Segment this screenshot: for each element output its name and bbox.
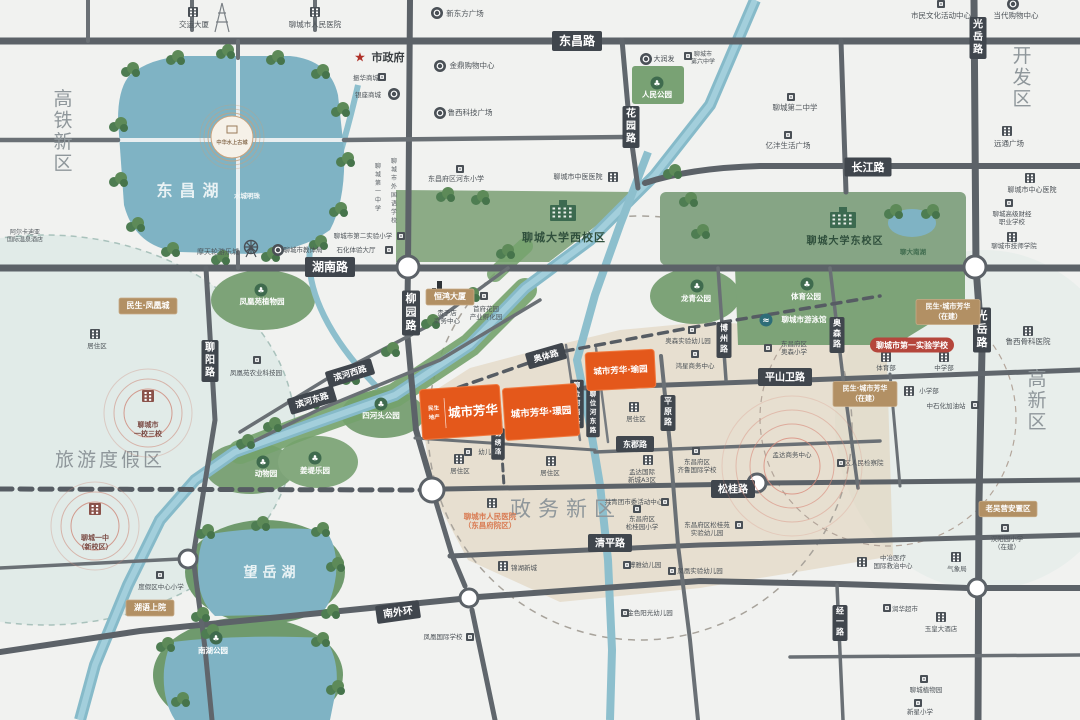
road-label: 湖南路	[305, 257, 355, 277]
project-block: 民生地产城市芳华	[419, 384, 502, 439]
project-block: 城市芳华·璟园	[502, 383, 579, 440]
project-block: 城市芳华·瑜园	[585, 349, 656, 391]
lake-wangyue-south	[164, 637, 337, 720]
road-label: 长江路	[845, 158, 892, 177]
road-label: 花园路	[623, 106, 640, 148]
road-label: 经一路	[833, 605, 848, 641]
road-label: 柳园路	[402, 291, 420, 336]
gold-badge: 民生·凤凰城	[119, 298, 177, 314]
road-label: 东昌路	[552, 31, 602, 51]
road-label: 光岳路	[970, 17, 987, 59]
road-label: 清平路	[588, 534, 632, 552]
gold-badge: 恒鸿大厦	[426, 289, 474, 305]
gold-badge: 老吴营安置区	[979, 501, 1037, 517]
road-label: 博州路	[717, 322, 732, 358]
gold-badge: 民生·城市芳华（在建）	[833, 382, 897, 407]
road-label: 东郡路	[616, 436, 654, 452]
map-stage: 高铁新区开发区高新区旅游度假区政务新区东昌湖望岳湖水城明珠聊大南湖东昌路长江路湖…	[0, 0, 1080, 720]
gold-badge: 民生·城市芳华（在建）	[916, 300, 980, 325]
map-canvas: 高铁新区开发区高新区旅游度假区政务新区东昌湖望岳湖水城明珠聊大南湖东昌路长江路湖…	[0, 0, 1080, 720]
lake-wangyue-north	[198, 528, 336, 616]
road-label: 平原路	[661, 395, 676, 431]
red-badge: 聊城市第一实验学校	[870, 338, 954, 353]
road-label: 松桂路	[711, 480, 755, 498]
road-label: 奥森路	[830, 317, 845, 353]
gold-badge: 湖语上院	[126, 600, 174, 616]
road-label: 聊阳路	[202, 340, 219, 382]
road-label: 平山卫路	[758, 368, 812, 386]
road-label: 聊位河东路	[586, 389, 600, 438]
